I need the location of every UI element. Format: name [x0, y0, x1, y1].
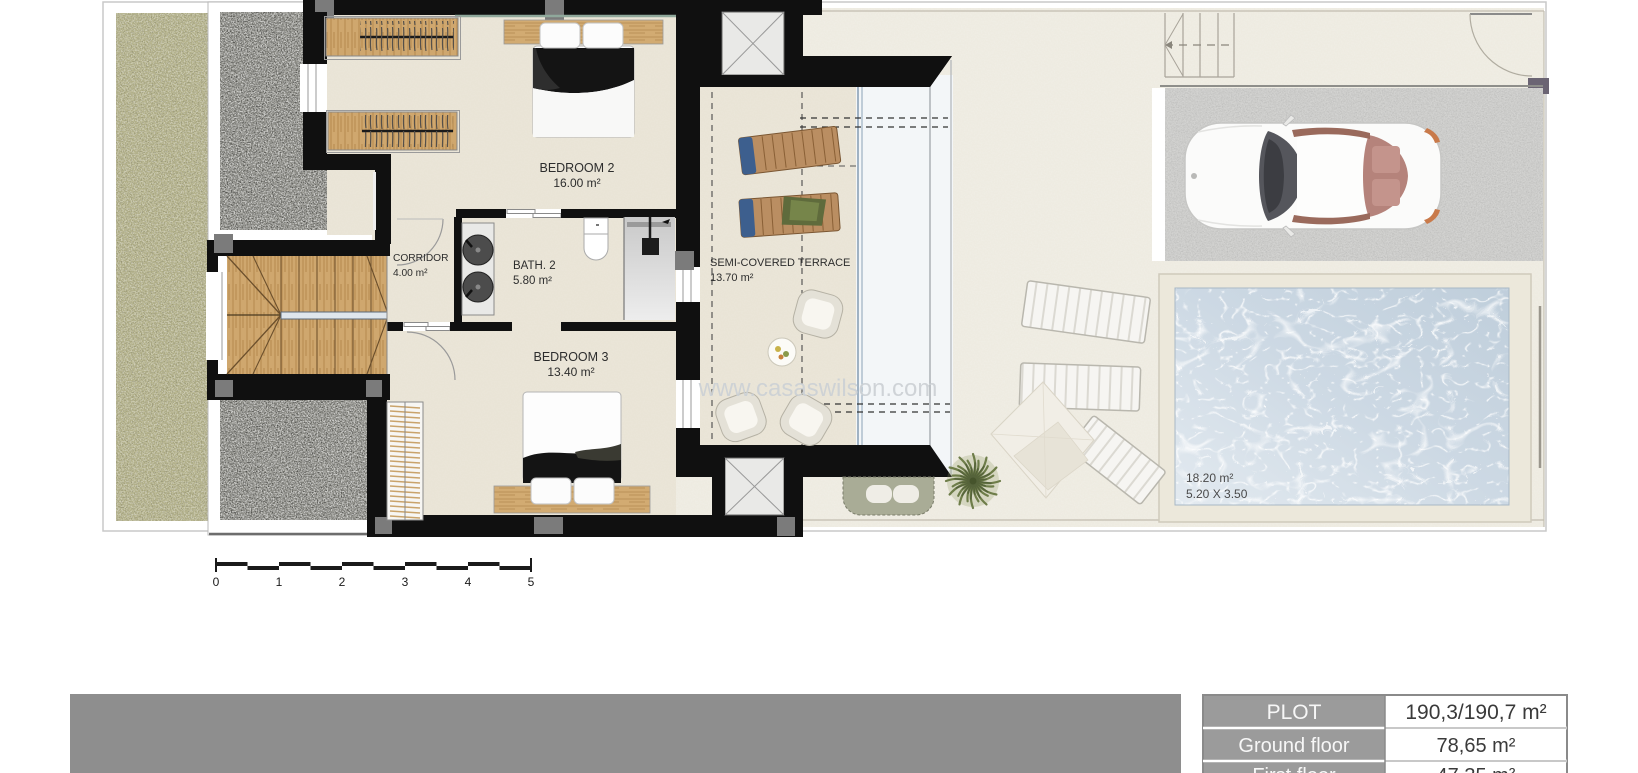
- svg-text:47,35 m²: 47,35 m²: [1437, 765, 1516, 773]
- svg-text:BATH. 2: BATH. 2: [513, 260, 556, 272]
- svg-text:0: 0: [213, 575, 220, 589]
- svg-text:PLOT: PLOT: [1267, 701, 1322, 724]
- svg-text:5.80 m²: 5.80 m²: [513, 275, 552, 287]
- svg-text:www.casaswilson.com: www.casaswilson.com: [698, 375, 938, 402]
- svg-text:SEMI-COVERED TERRACE: SEMI-COVERED TERRACE: [710, 257, 850, 269]
- svg-text:5: 5: [528, 575, 535, 589]
- svg-text:3: 3: [402, 575, 409, 589]
- svg-text:2: 2: [339, 575, 346, 589]
- svg-text:18.20 m²: 18.20 m²: [1186, 471, 1233, 485]
- svg-text:1: 1: [276, 575, 283, 589]
- svg-text:First floor: First floor: [1252, 765, 1336, 773]
- svg-text:190,3/190,7 m²: 190,3/190,7 m²: [1405, 701, 1546, 724]
- svg-text:BEDROOM 3: BEDROOM 3: [533, 350, 608, 364]
- svg-text:5.20 X 3.50: 5.20 X 3.50: [1186, 487, 1248, 501]
- svg-text:16.00 m²: 16.00 m²: [553, 176, 600, 190]
- svg-text:CORRIDOR: CORRIDOR: [393, 253, 448, 264]
- svg-text:4.00 m²: 4.00 m²: [393, 268, 428, 279]
- svg-text:13.70 m²: 13.70 m²: [710, 272, 754, 284]
- svg-text:4: 4: [465, 575, 472, 589]
- svg-text:13.40 m²: 13.40 m²: [547, 365, 594, 379]
- svg-text:BEDROOM 2: BEDROOM 2: [539, 161, 614, 175]
- svg-text:78,65 m²: 78,65 m²: [1437, 735, 1516, 757]
- svg-text:Ground floor: Ground floor: [1238, 735, 1350, 757]
